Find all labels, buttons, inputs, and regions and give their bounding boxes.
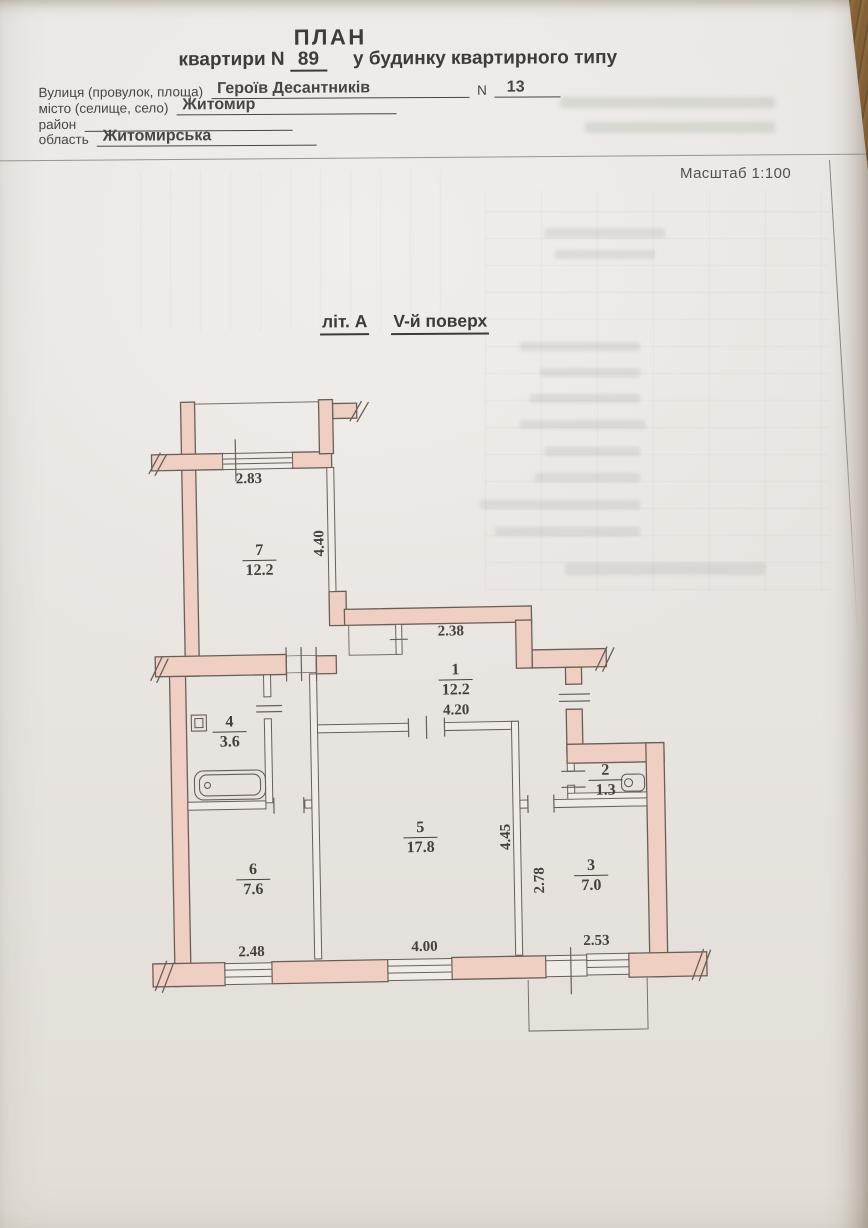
paper-sheet: ПЛАН квартири N 89у будинку квартирного … bbox=[0, 0, 868, 1228]
room-6-label: 6 7.6 bbox=[221, 862, 286, 900]
bathtub-icon bbox=[194, 770, 266, 800]
room-number: 6 bbox=[249, 862, 257, 878]
floor-plan-drawing bbox=[0, 0, 868, 1228]
room-area: 1.3 bbox=[596, 783, 616, 800]
dim-tick bbox=[571, 947, 572, 994]
dimension-4-40: 4.40 bbox=[311, 511, 329, 575]
room-1-label: 1 12.2 bbox=[423, 662, 488, 700]
room-number: 7 bbox=[255, 543, 263, 559]
room-7-label: 7 12.2 bbox=[227, 542, 292, 580]
room-area: 17.8 bbox=[407, 840, 435, 857]
dimension-2-53: 2.53 bbox=[564, 932, 628, 950]
window-room7 bbox=[222, 452, 292, 469]
dimension-2-78: 2.78 bbox=[531, 848, 549, 912]
room-area: 7.0 bbox=[581, 878, 601, 895]
window-room5 bbox=[388, 958, 452, 980]
floor-plan: 7 12.2 1 12.2 4 3.6 2 1.3 5 bbox=[0, 0, 868, 1228]
room-number: 2 bbox=[601, 763, 609, 779]
room-area: 7.6 bbox=[243, 882, 263, 899]
window-room6 bbox=[225, 963, 272, 985]
dimension-2-83: 2.83 bbox=[217, 471, 281, 489]
balcony-door bbox=[546, 955, 587, 977]
room-5-label: 5 17.8 bbox=[388, 819, 453, 857]
room-area: 3.6 bbox=[220, 735, 240, 752]
room-3-label: 3 7.0 bbox=[559, 857, 624, 895]
dimension-2-48: 2.48 bbox=[219, 944, 283, 962]
room-4-label: 4 3.6 bbox=[197, 714, 262, 752]
balcony-outline bbox=[528, 978, 648, 1031]
room-number: 3 bbox=[587, 858, 595, 874]
room-number: 4 bbox=[225, 714, 233, 730]
room-area: 12.2 bbox=[442, 682, 470, 699]
room-2-label: 2 1.3 bbox=[573, 762, 638, 800]
photographed-document: ПЛАН квартири N 89у будинку квартирного … bbox=[0, 0, 868, 1228]
room-number: 1 bbox=[451, 662, 459, 678]
window-room3 bbox=[587, 953, 629, 975]
dimension-4-20: 4.20 bbox=[424, 702, 488, 720]
dimension-2-38: 2.38 bbox=[419, 623, 483, 641]
dimension-4-00: 4.00 bbox=[392, 938, 456, 956]
door-ticks bbox=[235, 433, 595, 1000]
room-area: 12.2 bbox=[245, 563, 273, 580]
loggia-top-edge bbox=[195, 402, 319, 404]
dimension-4-45: 4.45 bbox=[497, 805, 515, 869]
room-number: 5 bbox=[416, 820, 424, 836]
closet-outline bbox=[349, 624, 397, 655]
